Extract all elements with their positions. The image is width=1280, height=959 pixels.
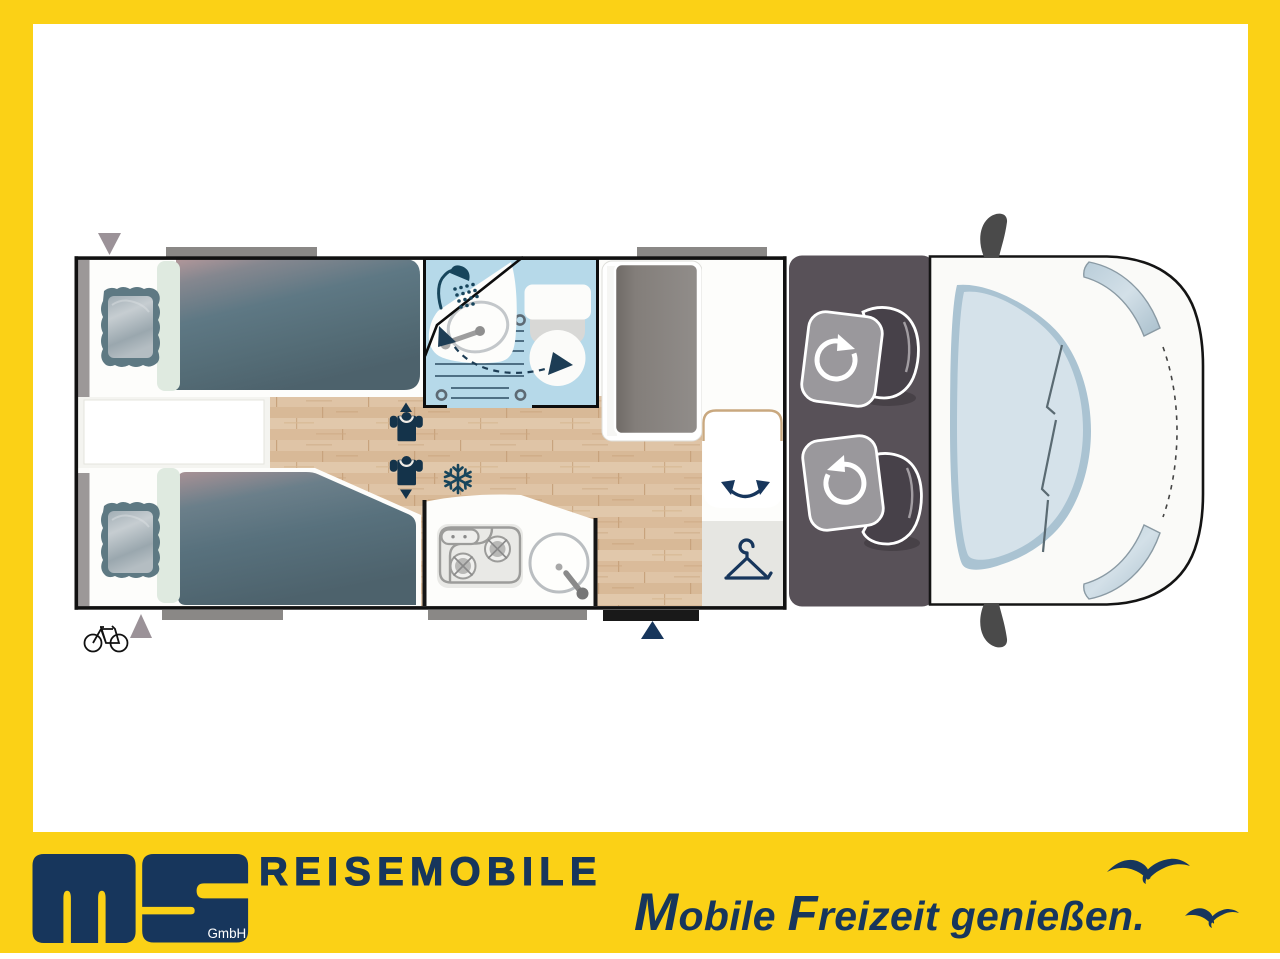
svg-text:GmbH: GmbH — [208, 926, 247, 941]
svg-text:REISEMOBILE: REISEMOBILE — [259, 850, 603, 894]
